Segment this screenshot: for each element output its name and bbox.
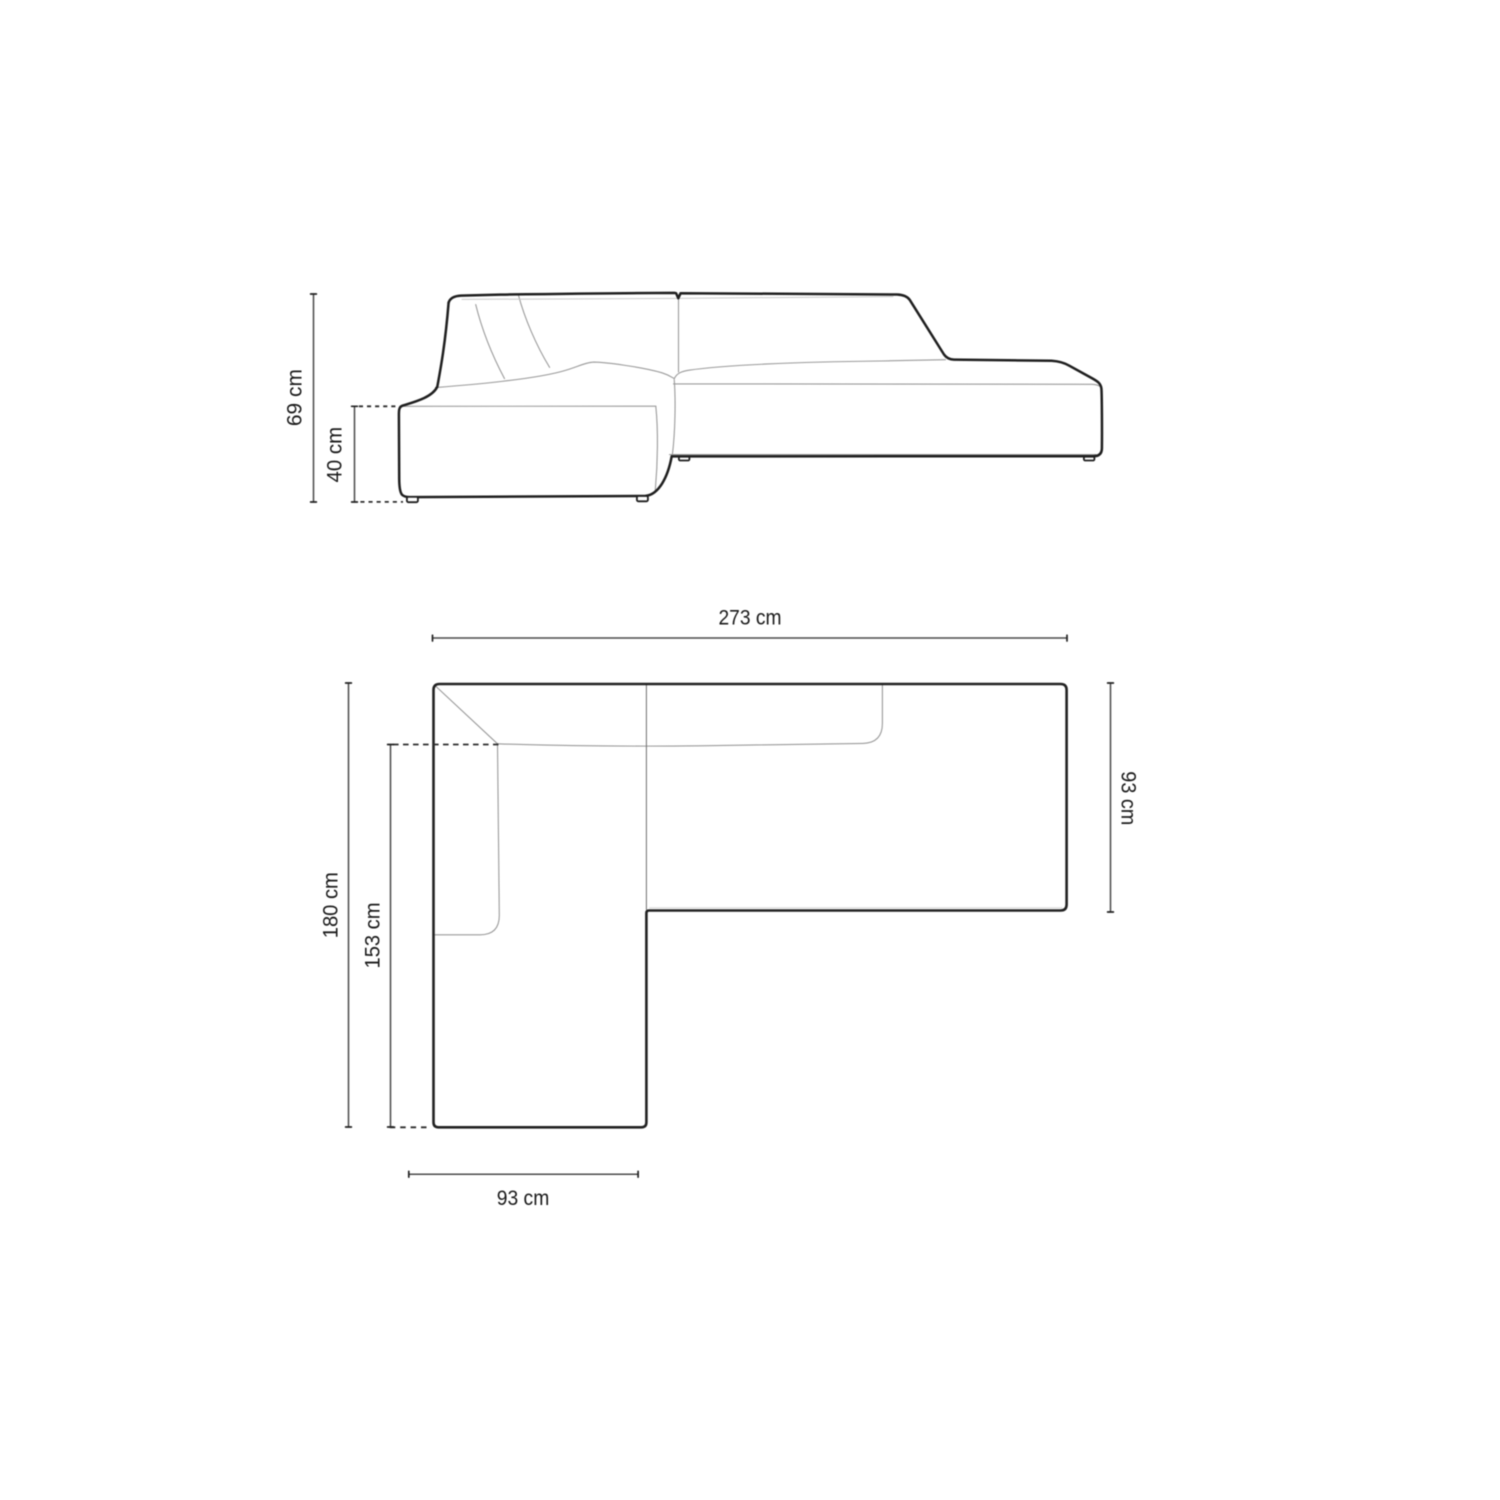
svg-text:153 cm: 153 cm bbox=[362, 903, 385, 969]
svg-text:93 cm: 93 cm bbox=[497, 1187, 550, 1210]
svg-text:69 cm: 69 cm bbox=[284, 369, 307, 426]
svg-text:40 cm: 40 cm bbox=[324, 427, 347, 483]
svg-text:180 cm: 180 cm bbox=[320, 872, 343, 938]
svg-text:93 cm: 93 cm bbox=[1117, 771, 1140, 825]
svg-text:273 cm: 273 cm bbox=[719, 607, 782, 630]
